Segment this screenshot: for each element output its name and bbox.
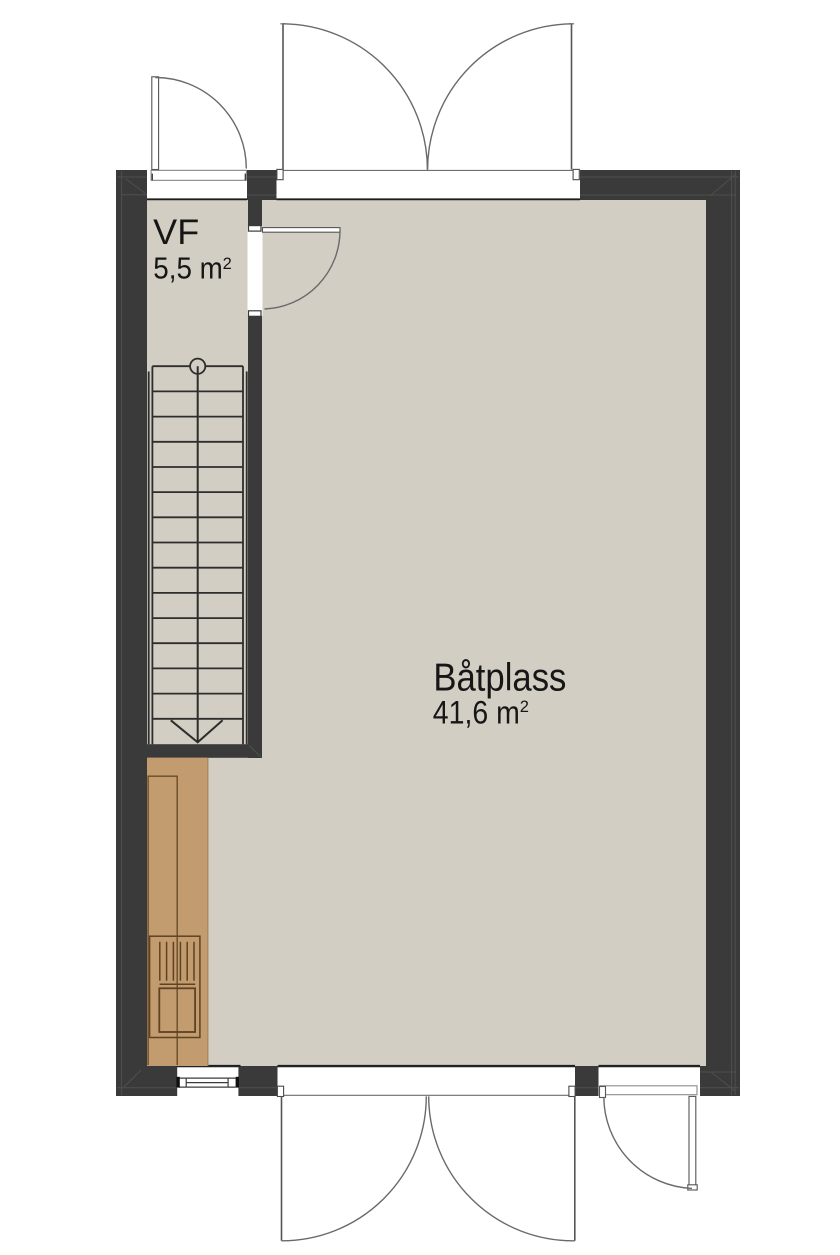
- svg-text:5,5 m: 5,5 m: [153, 251, 223, 286]
- svg-text:Båtplass: Båtplass: [433, 656, 566, 699]
- svg-text:VF: VF: [153, 213, 199, 252]
- svg-text:41,6 m: 41,6 m: [433, 694, 520, 730]
- svg-text:2: 2: [520, 698, 529, 716]
- svg-text:2: 2: [223, 255, 232, 273]
